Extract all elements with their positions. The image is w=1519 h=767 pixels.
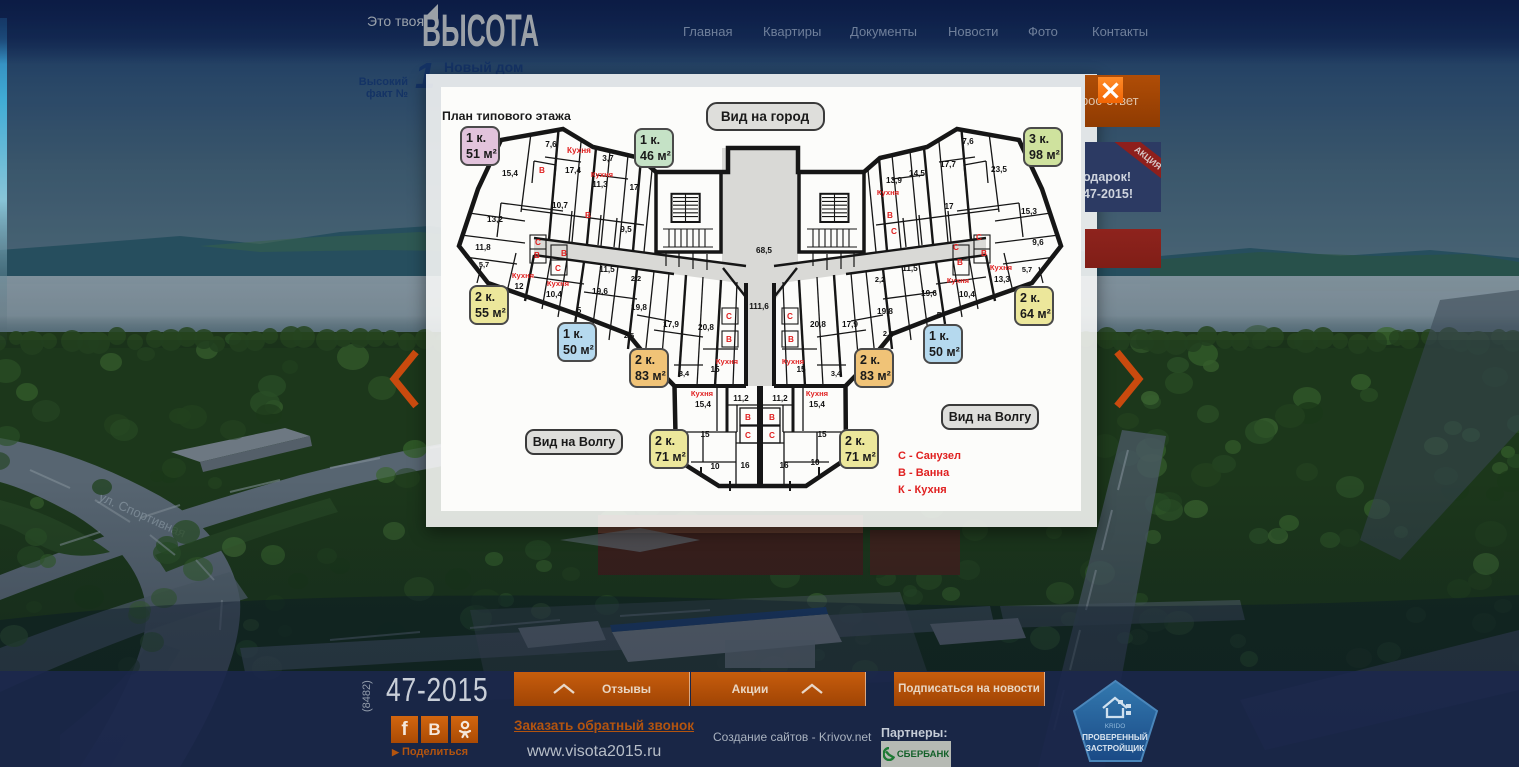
svg-text:17,7: 17,7 [940, 160, 956, 169]
svg-text:1 к.: 1 к. [640, 133, 660, 147]
svg-text:11,8: 11,8 [475, 243, 491, 252]
svg-text:7,6: 7,6 [545, 140, 557, 149]
svg-text:С: С [535, 238, 541, 247]
svg-text:В: В [788, 335, 794, 344]
svg-text:1 к.: 1 к. [563, 327, 583, 341]
svg-text:15,4: 15,4 [809, 400, 825, 409]
svg-text:2,5: 2,5 [883, 329, 893, 338]
svg-text:К - Кухня: К - Кухня [898, 484, 947, 496]
svg-text:С: С [745, 431, 751, 440]
svg-text:Вид на Волгу: Вид на Волгу [533, 435, 616, 449]
svg-text:1 к.: 1 к. [929, 329, 949, 343]
svg-text:10: 10 [810, 458, 820, 467]
svg-text:С - Санузел: С - Санузел [898, 450, 961, 462]
svg-text:11,2: 11,2 [733, 394, 749, 403]
svg-text:23,5: 23,5 [991, 165, 1007, 174]
svg-text:В: В [539, 166, 545, 175]
svg-text:14,5: 14,5 [909, 169, 925, 178]
svg-text:С: С [726, 312, 732, 321]
svg-text:С: С [555, 264, 561, 273]
svg-text:98 м²: 98 м² [1029, 148, 1060, 162]
svg-text:9,6: 9,6 [1032, 238, 1044, 247]
svg-text:3,4: 3,4 [679, 369, 690, 378]
svg-text:46 м²: 46 м² [640, 149, 671, 163]
svg-text:2 к.: 2 к. [1020, 291, 1040, 305]
svg-text:11,5: 11,5 [599, 265, 615, 274]
svg-text:17: 17 [944, 202, 954, 211]
svg-text:111,6: 111,6 [749, 302, 769, 311]
svg-text:2 к.: 2 к. [860, 353, 880, 367]
svg-text:3,4: 3,4 [831, 369, 842, 378]
svg-text:В: В [957, 258, 963, 267]
svg-text:Кухня: Кухня [547, 279, 569, 288]
svg-text:Кухня: Кухня [591, 170, 613, 179]
svg-text:Кухня: Кухня [512, 271, 534, 280]
svg-text:11,3: 11,3 [592, 180, 608, 189]
svg-text:KRIDO: KRIDO [1105, 723, 1126, 730]
svg-text:С: С [976, 233, 982, 242]
svg-text:С: С [769, 431, 775, 440]
svg-text:50 м²: 50 м² [563, 343, 594, 357]
svg-text:16: 16 [740, 461, 750, 470]
svg-text:15,3: 15,3 [1021, 207, 1037, 216]
svg-text:В: В [981, 249, 987, 258]
svg-text:17,4: 17,4 [565, 166, 581, 175]
svg-text:2,2: 2,2 [631, 274, 641, 283]
svg-text:2 к.: 2 к. [635, 353, 655, 367]
svg-text:2 к.: 2 к. [475, 290, 495, 304]
svg-text:15: 15 [817, 430, 827, 439]
svg-text:2,2: 2,2 [875, 275, 885, 284]
svg-text:1 к.: 1 к. [466, 131, 486, 145]
svg-text:5: 5 [577, 306, 582, 315]
svg-text:Кухня: Кухня [806, 389, 828, 398]
svg-text:13,3: 13,3 [994, 275, 1010, 284]
svg-text:10,7: 10,7 [552, 201, 568, 210]
svg-text:19,8: 19,8 [877, 307, 893, 316]
svg-text:Кухня: Кухня [877, 188, 899, 197]
svg-text:68,5: 68,5 [756, 246, 772, 255]
svg-text:11,2: 11,2 [772, 394, 788, 403]
svg-text:15: 15 [700, 430, 710, 439]
svg-text:71 м²: 71 м² [845, 450, 876, 464]
svg-text:С: С [953, 243, 959, 252]
svg-text:20,8: 20,8 [810, 320, 826, 329]
svg-text:64 м²: 64 м² [1020, 307, 1051, 321]
svg-text:Вид на город: Вид на город [721, 109, 810, 124]
svg-text:19,6: 19,6 [592, 287, 608, 296]
svg-text:13,9: 13,9 [886, 176, 902, 185]
svg-text:71 м²: 71 м² [655, 450, 686, 464]
svg-text:17: 17 [629, 183, 639, 192]
svg-text:План типового этажа: План типового этажа [442, 109, 571, 123]
svg-text:Кухня: Кухня [567, 146, 591, 155]
svg-text:55 м²: 55 м² [475, 306, 506, 320]
svg-text:Кухня: Кухня [990, 263, 1012, 272]
svg-text:В: В [561, 249, 567, 258]
svg-text:В: В [534, 251, 540, 260]
svg-text:2 к.: 2 к. [845, 434, 865, 448]
svg-text:20,8: 20,8 [698, 323, 714, 332]
svg-text:5: 5 [937, 311, 942, 320]
svg-text:Кухня: Кухня [691, 389, 713, 398]
svg-text:15: 15 [796, 365, 806, 374]
svg-text:51 м²: 51 м² [466, 147, 497, 161]
svg-text:2 к.: 2 к. [655, 434, 675, 448]
svg-text:10,4: 10,4 [959, 290, 975, 299]
svg-text:В: В [585, 211, 591, 220]
svg-text:3,7: 3,7 [602, 154, 614, 163]
svg-text:ЗАСТРОЙЩИК: ЗАСТРОЙЩИК [1086, 742, 1145, 753]
svg-text:15,4: 15,4 [695, 400, 711, 409]
svg-text:15: 15 [710, 365, 720, 374]
svg-text:15,4: 15,4 [502, 169, 518, 178]
svg-text:Кухня: Кухня [947, 276, 969, 285]
svg-text:10: 10 [710, 462, 720, 471]
svg-text:83 м²: 83 м² [860, 369, 891, 383]
svg-text:2,5: 2,5 [624, 331, 634, 340]
svg-text:19,6: 19,6 [921, 289, 937, 298]
svg-text:С: С [787, 312, 793, 321]
svg-text:50 м²: 50 м² [929, 345, 960, 359]
svg-text:В: В [769, 413, 775, 422]
svg-text:83 м²: 83 м² [635, 369, 666, 383]
svg-text:9,5: 9,5 [620, 225, 632, 234]
svg-text:ВЫСОТА: ВЫСОТА [422, 6, 539, 50]
svg-text:13,2: 13,2 [487, 215, 503, 224]
svg-text:10,4: 10,4 [546, 290, 562, 299]
svg-text:ПРОВЕРЕННЫЙ: ПРОВЕРЕННЫЙ [1082, 731, 1148, 742]
svg-text:Вид на Волгу: Вид на Волгу [949, 410, 1032, 424]
svg-text:5,7: 5,7 [1022, 265, 1032, 274]
svg-text:17,9: 17,9 [663, 320, 679, 329]
svg-text:12: 12 [514, 282, 524, 291]
svg-text:5,7: 5,7 [479, 260, 489, 269]
svg-text:В: В [887, 211, 893, 220]
svg-text:17,9: 17,9 [842, 320, 858, 329]
svg-text:19,8: 19,8 [631, 303, 647, 312]
svg-text:11,5: 11,5 [902, 264, 918, 273]
svg-text:С: С [891, 227, 897, 236]
svg-text:3 к.: 3 к. [1029, 132, 1049, 146]
svg-text:В: В [745, 413, 751, 422]
svg-text:В: В [726, 335, 732, 344]
svg-text:16: 16 [779, 461, 789, 470]
svg-text:7,6: 7,6 [962, 137, 974, 146]
svg-text:В - Ванна: В - Ванна [898, 467, 950, 479]
